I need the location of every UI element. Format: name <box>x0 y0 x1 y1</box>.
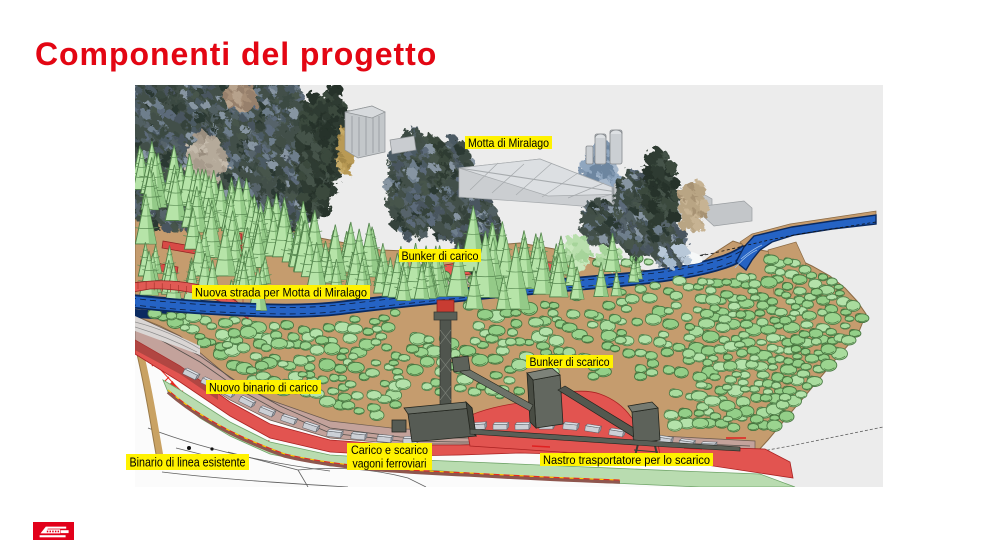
svg-text:Motta di Miralago: Motta di Miralago <box>468 136 549 150</box>
svg-text:Nuova strada per Motta di Mira: Nuova strada per Motta di Miralago <box>195 285 367 299</box>
svg-text:Binario di linea esistente: Binario di linea esistente <box>130 455 246 470</box>
svg-text:Componenti del progetto: Componenti del progetto <box>35 36 437 72</box>
svg-text:Nuovo binario di carico: Nuovo binario di carico <box>209 380 318 394</box>
svg-text:Bunker di carico: Bunker di carico <box>402 249 479 263</box>
svg-text:Bunker di scarico: Bunker di scarico <box>530 355 610 369</box>
svg-text:vagoni ferroviari: vagoni ferroviari <box>353 457 427 471</box>
svg-text:Carico e scarico: Carico e scarico <box>351 443 428 457</box>
svg-text:Nastro trasportatore per lo sc: Nastro trasportatore per lo scarico <box>543 453 710 467</box>
